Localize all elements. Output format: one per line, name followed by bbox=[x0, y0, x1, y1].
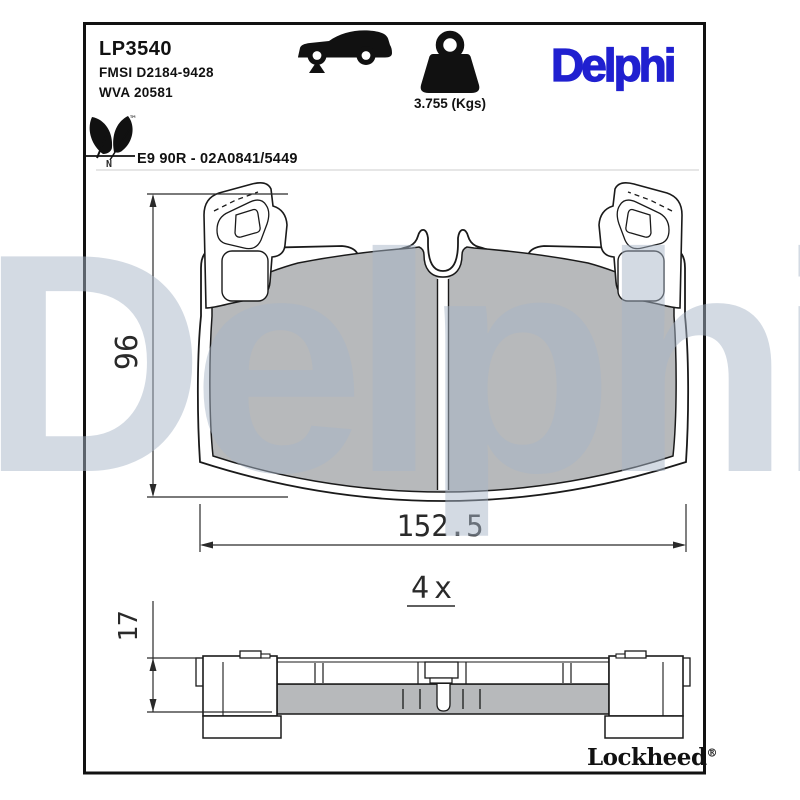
quantity-label: 4x bbox=[411, 571, 457, 606]
part-number: LP3540 bbox=[99, 38, 172, 61]
ear-clip bbox=[222, 251, 268, 301]
weight-icon bbox=[421, 35, 480, 94]
car-side-icon bbox=[298, 30, 392, 73]
technical-drawing: N ™ bbox=[0, 0, 800, 800]
registered-mark: ® bbox=[707, 746, 718, 759]
fmsi-reference: FMSI D2184-9428 bbox=[99, 65, 214, 80]
centre-groove bbox=[438, 278, 449, 490]
leaf-eco-icon: N ™ bbox=[86, 115, 136, 170]
datasheet-page: N ™ bbox=[0, 0, 800, 800]
leaf-tm-label: ™ bbox=[129, 115, 135, 125]
side-view bbox=[196, 651, 690, 738]
homologation-label: E9 90R - 02A0841/5449 bbox=[137, 151, 298, 167]
end-cap-left bbox=[196, 651, 281, 738]
lockheed-logo: Lockheed® bbox=[587, 744, 717, 771]
lockheed-wordmark: Lockheed bbox=[587, 744, 707, 771]
weight-label: 3.755 (Kgs) bbox=[395, 96, 505, 111]
friction-slot bbox=[437, 684, 450, 711]
end-cap-right bbox=[605, 651, 690, 738]
delphi-logo: Delphi bbox=[551, 42, 674, 88]
dim-width-label: 152.5 bbox=[396, 509, 483, 543]
ear-hole bbox=[235, 210, 260, 238]
wva-reference: WVA 20581 bbox=[99, 85, 173, 100]
leaf-n-label: N bbox=[106, 159, 112, 170]
front-view bbox=[198, 183, 688, 501]
dim-height-label: 96 bbox=[110, 334, 145, 370]
dim-thickness-label: 17 bbox=[114, 610, 144, 641]
